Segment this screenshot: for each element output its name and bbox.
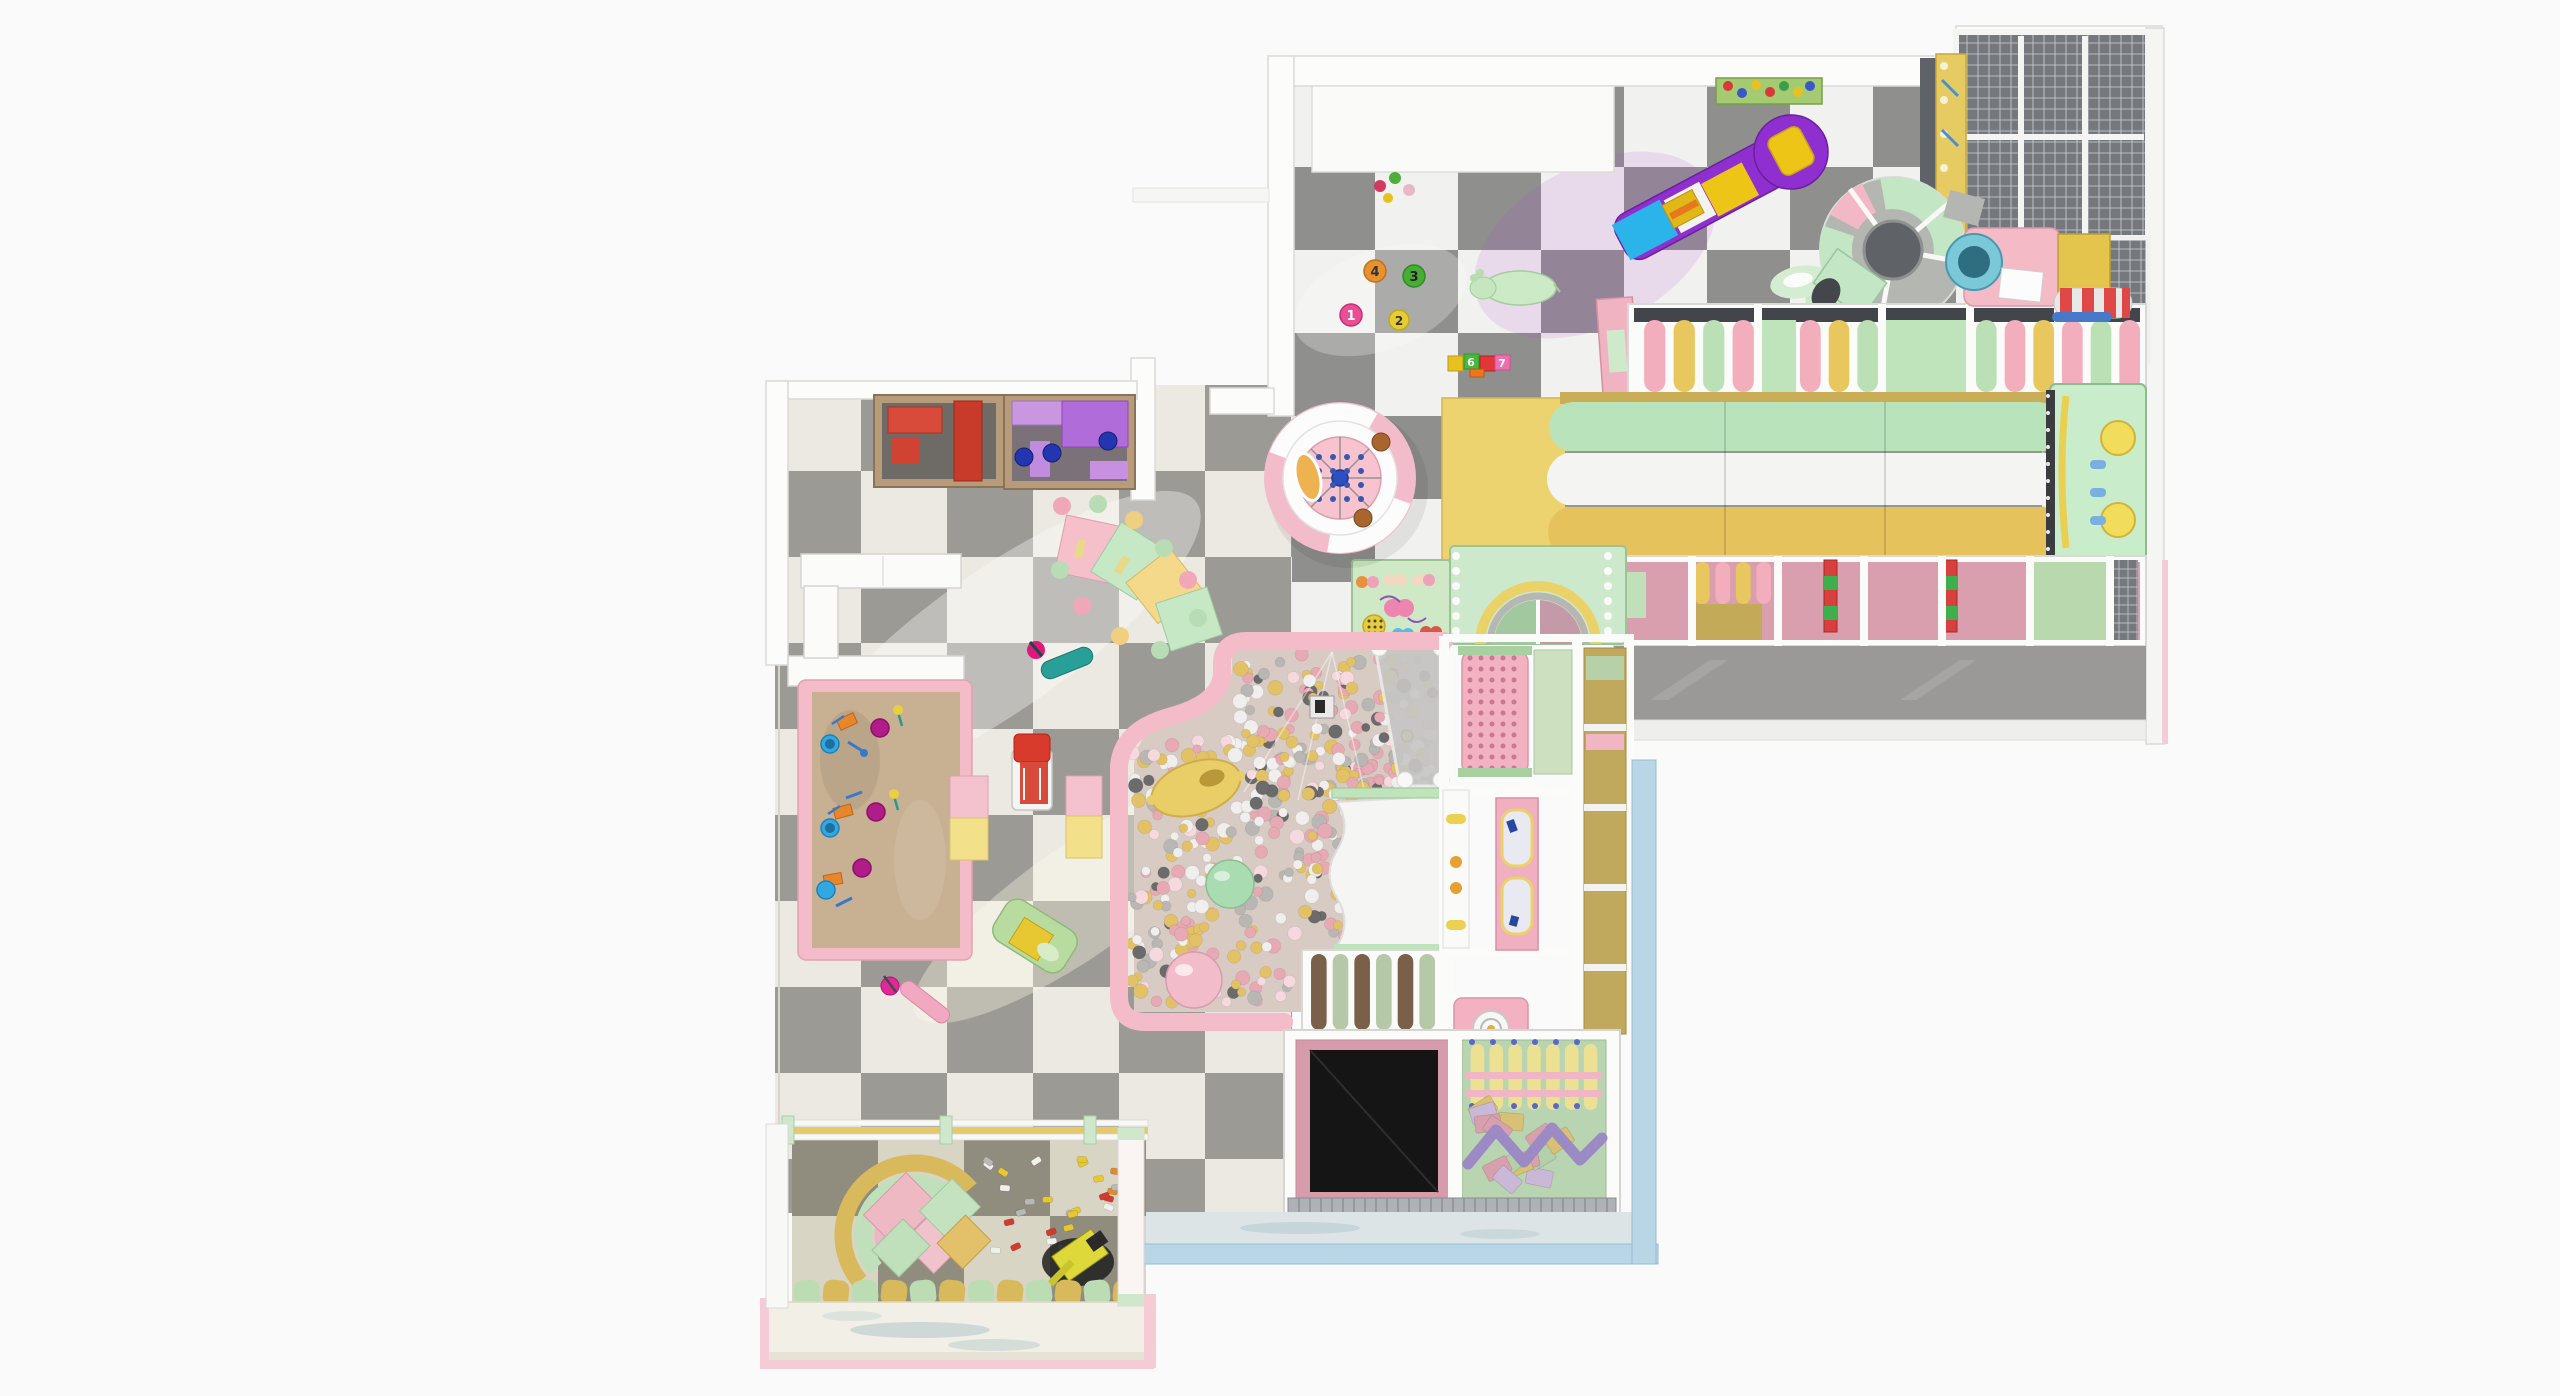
climb-knob <box>1450 882 1462 894</box>
caterpillar-foot <box>1179 571 1197 589</box>
pink-rail <box>1466 1072 1602 1079</box>
caterpillar-foot <box>1189 609 1207 627</box>
frame-post <box>1572 640 1582 1040</box>
left-wall-upper <box>766 381 788 665</box>
wave-slide-lane-green <box>1574 402 2038 452</box>
lane-end <box>1547 452 1601 506</box>
climb-peg <box>1446 920 1466 930</box>
frame-mullion <box>1448 1038 1462 1198</box>
climb-peg <box>1446 814 1466 824</box>
platform-stain <box>948 1339 1040 1351</box>
big-green-ball <box>1206 860 1254 908</box>
roller-gap-mat <box>1882 320 1972 392</box>
cube-6-label: 6 <box>1467 356 1475 369</box>
floatie-nub <box>1147 795 1157 805</box>
pink-rail <box>1466 1090 1602 1097</box>
cloud-slide <box>1330 796 1444 946</box>
corner-left-wall <box>766 1124 788 1308</box>
caterpillar-foot <box>1073 597 1091 615</box>
ball-highlight <box>1214 871 1230 881</box>
caterpillar-foot <box>1125 511 1143 529</box>
roller-gap-mat <box>1758 320 1796 392</box>
play-ball <box>1383 193 1393 203</box>
climb-knob <box>1450 856 1462 868</box>
entry-stub-wall <box>1133 188 1269 202</box>
deck-beam <box>1584 884 1626 891</box>
carousel-seat <box>1354 509 1372 527</box>
purple-sofa <box>1062 401 1128 447</box>
big-pink-ball <box>1166 952 1222 1008</box>
pouf-1-label: 1 <box>1346 309 1355 324</box>
bench-block-pink <box>1066 776 1102 816</box>
pinwheel-head <box>893 705 903 715</box>
candy-roller-base <box>2052 312 2112 322</box>
ball-highlight <box>1175 964 1193 976</box>
frame-mullion <box>1966 304 1974 400</box>
white-counter <box>801 554 961 588</box>
barrel-tag <box>1999 268 2044 302</box>
walkway-edge <box>1614 720 2146 740</box>
number-cube <box>1448 356 1463 371</box>
net-anchor-dark <box>1315 700 1325 713</box>
shadow-walkway <box>1614 646 2146 720</box>
white-shelf-side <box>804 586 838 658</box>
pouf-2-label: 2 <box>1395 314 1403 328</box>
sand-shading <box>894 800 946 920</box>
caterpillar-foot <box>1111 627 1129 645</box>
blue-stool <box>1015 448 1033 466</box>
butterfly-wing <box>1384 574 1396 586</box>
red-ottoman <box>892 437 920 463</box>
mint-deck-block <box>1534 650 1572 774</box>
right-wall-pink-edge <box>2162 560 2168 744</box>
frame-mullion <box>1860 556 1868 646</box>
cube-7-label: 7 <box>1498 357 1506 370</box>
barrel-face-inner <box>1958 246 1990 278</box>
hippo-ear <box>1476 269 1484 277</box>
deck-pink-bit <box>1586 734 1624 750</box>
deck-khaki-pad <box>1692 604 1762 640</box>
caterpillar-foot <box>1155 539 1173 557</box>
frame-mullion <box>1938 556 1946 646</box>
ballpit-wall-cap <box>1275 1013 1293 1031</box>
fence-post <box>1084 1116 1096 1144</box>
left-wall-bigkid <box>1268 56 1294 416</box>
bench-block-yellow <box>1066 816 1102 858</box>
blue-rung <box>2090 516 2106 525</box>
white-stage-platform <box>1312 86 1614 172</box>
platform-pink-corner <box>1144 1294 1156 1368</box>
wall-mint-cap <box>1118 1128 1144 1140</box>
outer-wall-blue-right <box>1632 760 1656 1264</box>
panel-dot <box>1793 87 1803 97</box>
pouf-3-label: 3 <box>1409 270 1418 285</box>
blue-rung <box>2090 488 2106 497</box>
play-ball <box>1389 172 1401 184</box>
bubble-window <box>1502 810 1532 866</box>
outer-wall-blue-bottom <box>1140 1244 1658 1264</box>
chute-bumper <box>1397 772 1413 788</box>
tower-green-cap <box>1458 646 1532 655</box>
wall-mint-cap <box>1118 1294 1144 1306</box>
candy-stripe <box>2122 288 2130 318</box>
shovel-head <box>860 749 868 757</box>
tower-green-cap <box>1458 768 1532 777</box>
slide-mint-trim <box>1332 788 1443 798</box>
butterfly-wing <box>1412 574 1424 586</box>
caterpillar-foot <box>1089 495 1107 513</box>
pole-green-band <box>1824 576 1837 590</box>
panel-dot <box>1805 81 1815 91</box>
caterpillar-foot <box>1051 561 1069 579</box>
carousel-seat <box>1372 433 1390 451</box>
pouf-4-label: 4 <box>1370 265 1379 280</box>
frame-mullion <box>1878 304 1886 400</box>
purple-low-table <box>1090 461 1128 479</box>
corner-right-wall <box>1118 1128 1144 1306</box>
grab-post <box>2101 503 2135 537</box>
blue-bucket <box>817 881 835 899</box>
bench-block-yellow <box>950 818 988 860</box>
deck-beam <box>1584 724 1626 731</box>
number-cube <box>1470 369 1484 377</box>
lane-end <box>1549 402 1599 452</box>
walkway-stain <box>1460 1229 1540 1239</box>
deck-green-floor <box>2030 562 2112 640</box>
blue-rung <box>2090 460 2106 469</box>
blue-stool <box>1099 432 1117 450</box>
pole-green-band <box>1824 606 1837 620</box>
panel-dot <box>1737 88 1747 98</box>
panel-dot <box>1723 81 1733 91</box>
entry-rail <box>2062 396 2066 548</box>
magenta-pot <box>867 803 885 821</box>
magenta-pot <box>853 859 871 877</box>
deck-beam <box>1584 964 1626 971</box>
page: 431267 <box>0 0 2560 1396</box>
deck-beam <box>1584 804 1626 811</box>
deck-green-bit <box>1586 656 1624 680</box>
bench-block-pink <box>950 776 988 818</box>
bubble-window <box>1502 878 1532 934</box>
blue-bucket-inner <box>825 823 835 833</box>
fireman-pole <box>1824 560 1837 632</box>
outside-walkway <box>1146 1212 1634 1244</box>
frame-mullion <box>1754 304 1762 400</box>
butterfly-wing <box>1423 574 1435 586</box>
wave-slide-lane-yellow <box>1574 506 2038 558</box>
butterfly-wing <box>1395 574 1407 586</box>
frame-mullion <box>2106 556 2114 646</box>
red-sofa <box>888 407 942 433</box>
fence-post <box>940 1116 952 1144</box>
grab-post <box>2101 421 2135 455</box>
magenta-pot <box>871 719 889 737</box>
wave-slide-lane-white <box>1574 452 2038 506</box>
padded-rollers <box>1800 320 1878 392</box>
deck-mesh <box>2110 560 2138 640</box>
fire-truck-cab <box>1014 734 1050 762</box>
platform-stain <box>822 1311 882 1321</box>
frame-mullion <box>1774 556 1782 646</box>
platform-pink-trim <box>760 1360 1154 1369</box>
red-table <box>954 401 982 481</box>
doorway-stub-wall <box>1210 388 1274 414</box>
purple-bench <box>1012 401 1066 425</box>
caterpillar-foot <box>1053 497 1071 515</box>
floatie-nub <box>1235 771 1245 781</box>
platform-stain <box>850 1322 990 1338</box>
caterpillar-foot <box>1151 641 1169 659</box>
frame-mullion <box>1688 556 1696 646</box>
pinwheel-head <box>889 789 899 799</box>
play-ball <box>1403 184 1415 196</box>
panel-dot <box>1751 80 1761 90</box>
khaki-deck <box>1584 648 1626 1034</box>
frame-mullion <box>2026 556 2034 646</box>
walkway-stain <box>1240 1222 1360 1234</box>
cage-beam <box>1960 134 2144 140</box>
blue-bucket-inner <box>825 739 835 749</box>
indoor-playground-floorplan-render: 431267 <box>0 0 2560 1396</box>
frame-beam <box>1443 634 1634 642</box>
roller-end-window <box>1607 329 1628 372</box>
panel-dot <box>1779 81 1789 91</box>
butterfly-wing <box>1367 576 1379 588</box>
blue-stool <box>1043 444 1061 462</box>
butterfly-wing <box>1356 576 1368 588</box>
play-ball <box>1374 180 1386 192</box>
panel-dot <box>1765 87 1775 97</box>
